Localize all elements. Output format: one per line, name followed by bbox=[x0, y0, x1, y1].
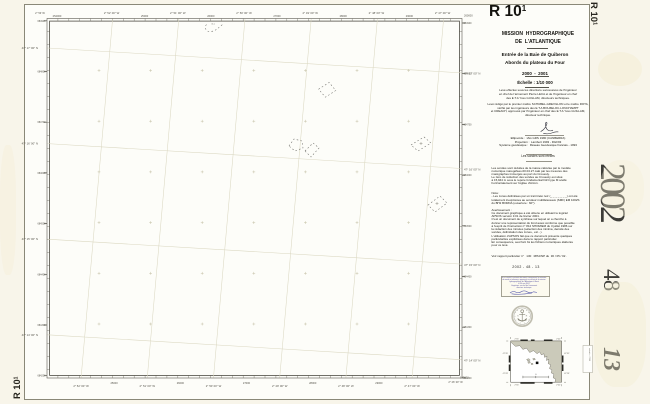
svg-text:47° 14' 00'' N: 47° 14' 00'' N bbox=[464, 359, 480, 363]
svg-text:684400: 684400 bbox=[464, 276, 473, 279]
svg-text:2°40′: 2°40′ bbox=[556, 339, 561, 341]
svg-text:47°35′: 47°35′ bbox=[503, 353, 509, 355]
svg-text:684200: 684200 bbox=[464, 377, 473, 380]
svg-text:2° 52' 00'' W: 2° 52' 00'' W bbox=[104, 11, 120, 15]
svg-text:27000: 27000 bbox=[273, 14, 281, 18]
svg-text:47°28′: 47°28′ bbox=[503, 373, 509, 375]
svg-text:2° 51' 00'' W: 2° 51' 00'' W bbox=[140, 384, 156, 388]
svg-text:47°35′: 47°35′ bbox=[564, 353, 570, 355]
svg-text:47°28′: 47°28′ bbox=[564, 373, 570, 375]
svg-text:28000: 28000 bbox=[340, 14, 348, 18]
svg-text:extrait c. 7033: extrait c. 7033 bbox=[588, 348, 591, 362]
svg-text:47° 17' 00'' N: 47° 17' 00'' N bbox=[22, 46, 38, 50]
svg-text:684400: 684400 bbox=[38, 273, 47, 276]
svg-text:47° 16' 00'' N: 47° 16' 00'' N bbox=[464, 167, 480, 171]
svg-text:2°56′: 2°56′ bbox=[515, 339, 520, 341]
svg-text:684300: 684300 bbox=[464, 326, 473, 329]
svg-text:684800: 684800 bbox=[38, 71, 47, 74]
svg-text:H: H bbox=[526, 315, 528, 317]
svg-text:2°40′: 2°40′ bbox=[556, 385, 561, 387]
svg-text:2° 51' 00'' W: 2° 51' 00'' W bbox=[170, 11, 186, 15]
svg-text:28000: 28000 bbox=[309, 381, 317, 385]
svg-text:684900: 684900 bbox=[464, 22, 473, 25]
svg-text:2° 52' 00'' W: 2° 52' 00'' W bbox=[73, 384, 89, 388]
svg-text:684500: 684500 bbox=[464, 225, 473, 228]
svg-text:2° 49' 00'' W: 2° 49' 00'' W bbox=[272, 384, 288, 388]
svg-text:26000: 26000 bbox=[177, 381, 185, 385]
svg-text:684200: 684200 bbox=[38, 375, 47, 378]
svg-text:2° 48' 00'' W: 2° 48' 00'' W bbox=[369, 11, 385, 15]
svg-text:684700: 684700 bbox=[38, 121, 47, 124]
svg-text:254000: 254000 bbox=[53, 14, 62, 18]
svg-text:25000: 25000 bbox=[110, 381, 118, 385]
svg-text:2° 48' 00'' W: 2° 48' 00'' W bbox=[338, 384, 354, 388]
svg-text:29000: 29000 bbox=[406, 14, 414, 18]
svg-text:684700: 684700 bbox=[464, 123, 473, 126]
svg-text:S: S bbox=[517, 315, 519, 317]
svg-text:2° 50' 00'' W: 2° 50' 00'' W bbox=[206, 384, 222, 388]
svg-text:47° 15' 00'' N: 47° 15' 00'' N bbox=[22, 237, 38, 241]
svg-text:29000: 29000 bbox=[375, 381, 383, 385]
svg-text:47° 16' 00'' N: 47° 16' 00'' N bbox=[22, 142, 38, 146]
svg-text:26000: 26000 bbox=[207, 14, 215, 18]
svg-text:m.s: m.s bbox=[212, 24, 215, 26]
svg-text:2° 49' 00'' W: 2° 49' 00'' W bbox=[302, 11, 318, 15]
svg-text:684900: 684900 bbox=[38, 20, 47, 23]
svg-text:2° 47' 00'' W: 2° 47' 00'' W bbox=[404, 384, 420, 388]
svg-text:25000: 25000 bbox=[141, 14, 149, 18]
svg-text:47° 14' 00'' N: 47° 14' 00'' N bbox=[22, 333, 38, 337]
svg-text:27000: 27000 bbox=[243, 381, 251, 385]
svg-text:684600: 684600 bbox=[38, 172, 47, 175]
svg-text:2° 50' 00'' W: 2° 50' 00'' W bbox=[236, 11, 252, 15]
svg-text:260000: 260000 bbox=[464, 14, 473, 18]
svg-text:M: M bbox=[525, 320, 527, 322]
svg-text:2° 47' 00'' W: 2° 47' 00'' W bbox=[435, 11, 451, 15]
svg-text:684500: 684500 bbox=[38, 223, 47, 226]
svg-text:2°56′: 2°56′ bbox=[515, 385, 520, 387]
svg-text:2° 53' W: 2° 53' W bbox=[35, 11, 45, 15]
svg-text:684600: 684600 bbox=[464, 174, 473, 177]
svg-text:684300: 684300 bbox=[38, 324, 47, 327]
svg-text:2° 46' 30'' W: 2° 46' 30'' W bbox=[448, 380, 463, 384]
